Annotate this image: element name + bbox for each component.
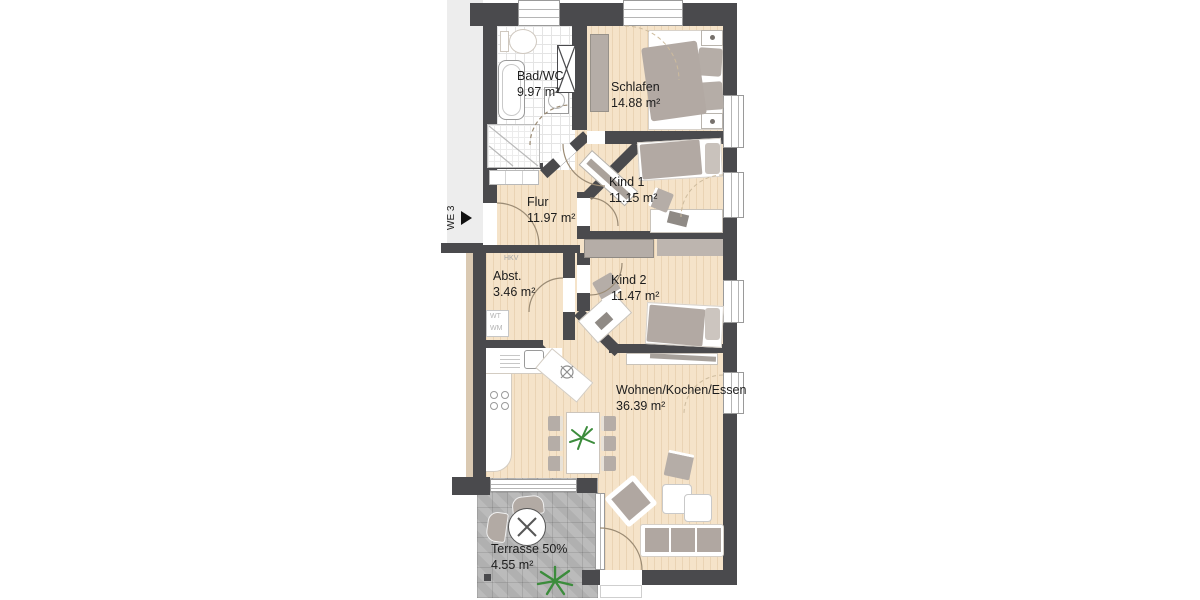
wall (577, 293, 590, 311)
window-schlafen-right (723, 95, 744, 148)
room-name: Terrasse 50% (491, 541, 567, 557)
exterior-finish-strip (466, 253, 473, 480)
kind2-pillow (705, 308, 720, 340)
lamp (710, 35, 715, 40)
terrace-glass-side (595, 493, 605, 570)
shower (487, 124, 540, 168)
window-bad (518, 0, 560, 26)
lounge-chair (664, 450, 695, 481)
window-schlafen-top (623, 0, 683, 26)
coffee-table (684, 494, 712, 522)
lamp (710, 119, 715, 124)
room-area: 11.47 m² (611, 288, 659, 304)
room-label-kind1: Kind 1 11.15 m² (609, 174, 657, 206)
abst-door-gap (563, 278, 575, 312)
wall (473, 340, 543, 348)
room-label-kind2: Kind 2 11.47 m² (611, 272, 659, 304)
sofa-cushion (671, 528, 695, 552)
terrace-pier (452, 477, 490, 495)
window-kind1 (723, 172, 744, 218)
room-label-wohnen: Wohnen/Kochen/Essen 36.39 m² (616, 382, 746, 414)
room-area: 3.46 m² (493, 284, 535, 300)
terrace-chair (485, 511, 509, 543)
dining-chair (548, 436, 563, 451)
terrace-glass-front (490, 479, 577, 492)
dining-table (566, 412, 600, 474)
window-kind2 (723, 280, 744, 323)
washer-label-wt: WT (490, 313, 501, 321)
kitchen-drainer (500, 352, 520, 368)
flur-sideboard (489, 170, 539, 185)
room-area: 9.97 m² (517, 84, 564, 100)
room-label-flur: Flur 11.97 m² (527, 194, 575, 226)
washer-box: WT WM (486, 310, 509, 337)
terrace-pier (577, 478, 597, 493)
unit-label: WE 3 (446, 196, 460, 240)
room-area: 4.55 m² (491, 557, 567, 573)
room-area: 36.39 m² (616, 398, 746, 414)
wall (473, 253, 486, 480)
floor-plan: WT WM HKV (0, 0, 1200, 600)
wall (560, 3, 623, 26)
unit-entrance-arrow-icon (461, 211, 472, 225)
dining-chair (601, 456, 616, 471)
schlafen-door-gap (587, 131, 605, 144)
dining-chair (601, 416, 616, 431)
wall (563, 253, 575, 278)
room-name: Abst. (493, 268, 535, 284)
dining-chair (601, 436, 616, 451)
entrance-door-gap (483, 203, 497, 245)
room-area: 11.15 m² (609, 190, 657, 206)
wall (473, 245, 580, 253)
washer-label-wm: WM (490, 325, 502, 333)
dining-chair (548, 456, 563, 471)
room-label-terrasse: Terrasse 50% 4.55 m² (491, 541, 567, 573)
wall (642, 570, 737, 585)
kind2-door-gap (577, 265, 590, 293)
room-name: Kind 2 (611, 272, 659, 288)
schlafen-wardrobe (590, 34, 609, 112)
sofa-cushion (645, 528, 669, 552)
kind2-wardrobe (584, 239, 654, 258)
wall (723, 414, 737, 570)
kind1-door-gap (577, 198, 590, 226)
terrace-door-threshold (600, 585, 642, 598)
room-area: 11.97 m² (527, 210, 575, 226)
wall (723, 218, 737, 280)
stove (489, 390, 511, 412)
sofa-cushion (697, 528, 721, 552)
toilet-bowl (509, 29, 537, 54)
toilet-tank (500, 31, 509, 52)
room-label-schlafen: Schlafen 14.88 m² (611, 79, 660, 111)
room-name: Flur (527, 194, 575, 210)
hkv-label: HKV (504, 255, 518, 263)
room-area: 14.88 m² (611, 95, 660, 111)
wall (563, 312, 575, 340)
wall (723, 148, 737, 172)
room-label-abst: Abst. 3.46 m² (493, 268, 535, 300)
kind2-duvet (646, 305, 705, 347)
room-name: Bad/WC (517, 68, 564, 84)
kind1-pillow (705, 143, 720, 174)
wall (723, 3, 737, 95)
terrace-post (484, 574, 491, 581)
room-name: Wohnen/Kochen/Essen (616, 382, 746, 398)
wall (577, 226, 590, 236)
kind2-wardrobe (657, 239, 723, 256)
dining-chair (548, 416, 563, 431)
room-label-bad: Bad/WC 9.97 m² (517, 68, 564, 100)
room-name: Kind 1 (609, 174, 657, 190)
wall (582, 570, 600, 585)
room-name: Schlafen (611, 79, 660, 95)
